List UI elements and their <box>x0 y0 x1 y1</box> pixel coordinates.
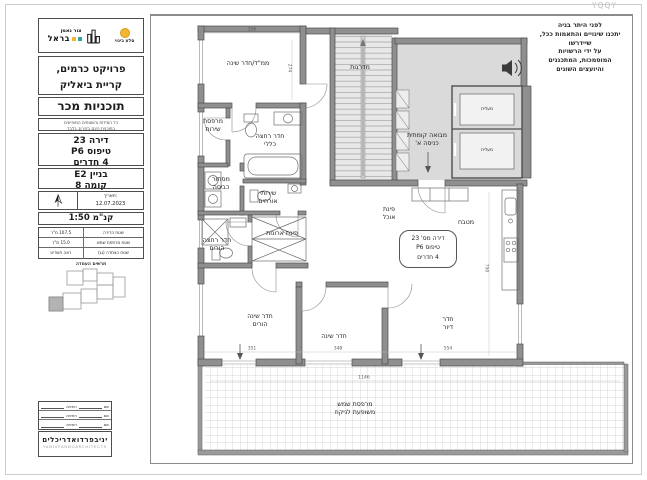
yellow-square-icon <box>72 37 76 41</box>
logo-tzur-line2: בראל <box>48 34 82 44</box>
date-value: 12.07.2023 <box>78 201 143 209</box>
room-label-elevator-2: מעלית <box>481 148 493 154</box>
drawing-sheet: YQQY <box>0 0 647 480</box>
sig-name-label: שם <box>104 404 109 409</box>
signature-block: שם חתימה שם חתימה שם חתימה <box>38 401 112 430</box>
buildings-icon <box>84 28 102 44</box>
sig-sign-label: חתימה <box>66 422 77 427</box>
date-label: תאריך: <box>78 194 143 201</box>
date-block: תאריך: 12.07.2023 <box>38 191 144 210</box>
floor-number: קומה 8 <box>39 181 143 192</box>
areas-table: שטח הדירה 107.5 מ"ר שטח מרפסת שמש 15.0 מ… <box>38 227 144 259</box>
dim-274: 274 <box>287 64 292 73</box>
sig-name-line <box>79 412 102 418</box>
sig-sign-label: חתימה <box>66 404 77 409</box>
table-row: שטח הצמדה (גג) ראה תשריט <box>39 248 143 258</box>
table-row: שטח מרפסת שמש 15.0 מ"ר <box>39 238 143 248</box>
measurements-note: כל המידות והשטחים המופיעים בתוכנית הינם … <box>38 118 144 131</box>
apartment-rooms: 4 חדרים <box>39 158 143 169</box>
document-title: תוכניות מכר <box>38 97 144 116</box>
dim-351: 351 <box>248 347 257 352</box>
sig-name-line <box>79 403 102 409</box>
sig-sign-line <box>41 422 64 428</box>
permit-disclaimer: לפני היתר בניה יתכנו שינויים והתאמות ככל… <box>530 22 630 75</box>
area-label: שטח הדירה <box>83 228 143 237</box>
signature-row: שם חתימה <box>39 420 111 429</box>
unit-tag-line3: 4 חדרים <box>400 253 456 262</box>
sig-name-label: שם <box>104 422 109 427</box>
unit-tag-line2: טיפוס P6 <box>400 243 456 252</box>
sig-sign-line <box>41 403 64 409</box>
area-label: שטח מרפסת שמש <box>83 238 143 247</box>
area-value: 107.5 מ"ר <box>39 228 83 237</box>
room-label-service-balcony: מרפסת שירות <box>203 118 223 134</box>
room-label-lobby: מבואה קומתית כניסה א' <box>407 132 447 148</box>
dim-1146: 1146 <box>358 376 369 381</box>
architect-name-he: יניבפרדואדריכלים <box>39 436 111 444</box>
apartment-number: דירה 23 <box>39 136 143 147</box>
apartment-info: דירה 23 טיפוס P6 4 חדרים <box>38 133 144 166</box>
sig-sign-line <box>41 412 64 418</box>
sig-name-line <box>79 422 102 428</box>
logo-tzur: צור נאמן בראל <box>48 28 102 44</box>
building-info: בניין E2 קומה 8 <box>38 168 144 189</box>
unit-tag-line1: דירה מס' 23 <box>400 234 456 243</box>
signature-row: שם חתימה <box>39 411 111 420</box>
logo-tzur-text: צור נאמן בראל <box>48 28 82 44</box>
room-label-dining: פינת אוכל <box>383 206 396 222</box>
dim-750: 750 <box>484 264 489 273</box>
area-value: 15.0 מ"ר <box>39 238 83 247</box>
room-label-kitchen: מטבח <box>458 219 474 227</box>
signature-row: שם חתימה <box>39 402 111 411</box>
logo-sela-text: סלע בינוי <box>115 39 134 44</box>
sig-sign-label: חתימה <box>66 413 77 418</box>
key-plan: תרשים העמדה <box>38 262 144 323</box>
area-value: ראה תשריט <box>39 248 83 258</box>
room-label-stairs: מדרגות <box>350 64 370 72</box>
dim-554: 554 <box>444 347 453 352</box>
building-number: בניין E2 <box>39 170 143 181</box>
highlighted-unit <box>49 297 63 311</box>
room-label-laundry: מסתור כביסה <box>212 176 230 192</box>
north-arrow-cell <box>39 192 78 209</box>
key-plan-diagram <box>41 267 141 319</box>
apartment-type: טיפוס P6 <box>39 147 143 158</box>
teal-square-icon <box>78 37 82 41</box>
balcony-tiles <box>205 365 624 450</box>
project-name: פרויקט כרמים, קריית ביאליק <box>38 56 144 95</box>
logo-sela: סלע בינוי <box>115 28 134 44</box>
date-cell: תאריך: 12.07.2023 <box>78 192 143 209</box>
architect-name-en: YANIVPARDOARCHITECTS <box>39 444 111 449</box>
area-label: שטח הצמדה (גג) <box>83 248 143 258</box>
room-label-bed-parents: חדר שינה הורים <box>247 313 273 329</box>
room-label-closets: פינת ארונות <box>266 230 298 238</box>
room-label-balcony: מרפסת שמש משופעת לניקוז <box>335 401 375 417</box>
architect-block: יניבפרדואדריכלים YANIVPARDOARCHITECTS <box>38 431 112 457</box>
logo-block: סלע בינוי צור נאמן בראל <box>38 18 144 53</box>
scale-block: קנ"מ 1:50 <box>38 212 144 225</box>
logo-tzur-bold: בראל <box>48 34 70 43</box>
elevator-shaft <box>452 86 522 178</box>
room-label-bath-parents: חדר רחצה הורים <box>203 237 232 253</box>
room-label-bath-general: חדר רחצה כללי <box>256 133 285 149</box>
unit-tag: דירה מס' 23 טיפוס P6 4 חדרים <box>399 230 457 268</box>
room-label-bedroom: חדר שינה <box>321 333 347 341</box>
north-arrow-icon <box>51 193 65 208</box>
room-label-elevator-1: מעלית <box>481 107 493 113</box>
sela-sun-icon <box>120 28 130 38</box>
dim-336: 336 <box>248 28 257 33</box>
sig-name-label: שם <box>104 413 109 418</box>
room-label-mamad: ממ"ד/חדר שינה <box>227 60 270 68</box>
room-label-living: חדר דיור <box>442 316 453 332</box>
room-label-guest-wc: שירותי אורחים <box>258 190 277 206</box>
dim-348: 348 <box>334 347 343 352</box>
table-row: שטח הדירה 107.5 מ"ר <box>39 228 143 238</box>
